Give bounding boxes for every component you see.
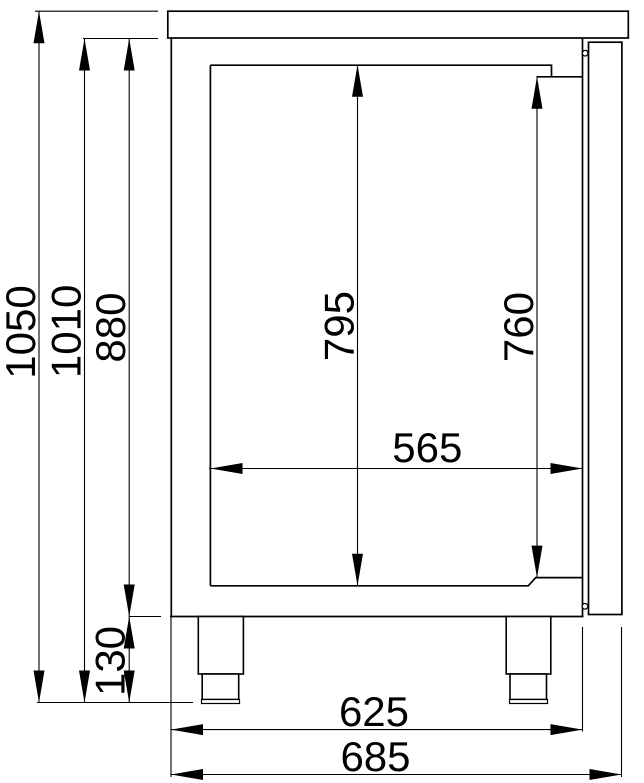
svg-text:1050: 1050 [0,285,44,378]
svg-text:130: 130 [86,626,133,696]
svg-text:685: 685 [340,733,410,780]
svg-text:880: 880 [87,293,134,363]
svg-text:625: 625 [339,688,409,735]
svg-text:565: 565 [392,424,462,471]
svg-text:760: 760 [495,292,542,362]
svg-text:795: 795 [315,291,362,361]
svg-text:1010: 1010 [42,285,89,378]
